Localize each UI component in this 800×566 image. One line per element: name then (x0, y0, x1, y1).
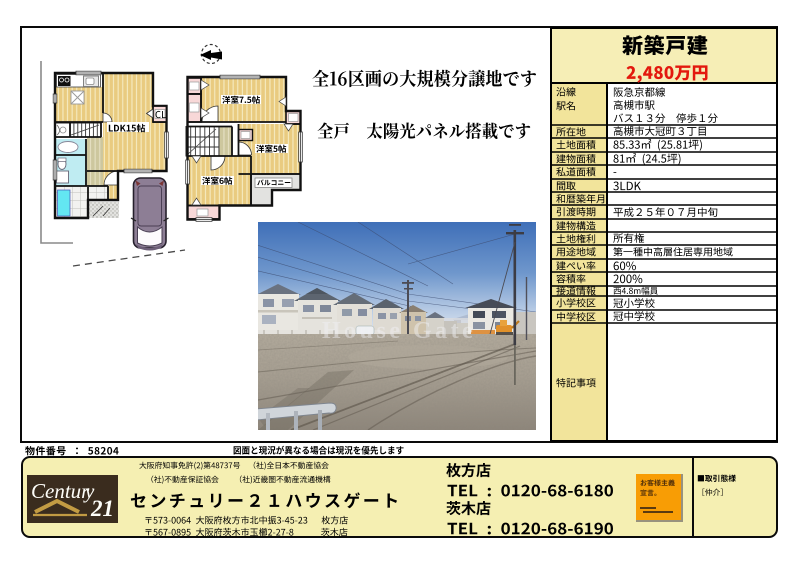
svg-text:21: 21 (90, 496, 114, 521)
svg-text:House Gate: House Gate (322, 318, 476, 344)
svg-text:Centur: Centur (31, 479, 90, 503)
